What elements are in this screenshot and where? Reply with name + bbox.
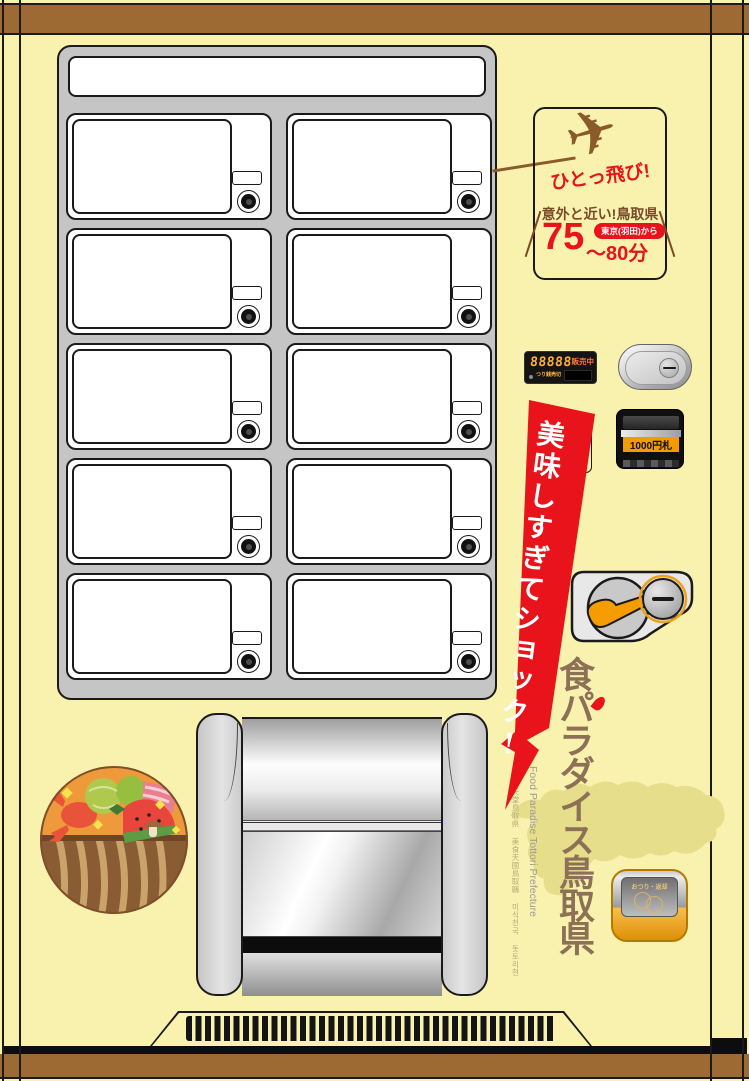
- product-window: [72, 579, 232, 674]
- knob-slit-icon: [652, 597, 674, 601]
- price-label: [232, 631, 262, 645]
- flight-origin-badge: 東京(羽田)から: [594, 223, 665, 239]
- vent-bars: [186, 1016, 556, 1041]
- price-label: [452, 286, 482, 300]
- select-button-ring: [241, 424, 256, 439]
- select-button-ring: [241, 539, 256, 554]
- product-window: [72, 234, 232, 329]
- display-sub-label-left: つり銭: [536, 373, 551, 379]
- select-button[interactable]: [237, 305, 260, 328]
- left-face-seam: [19, 0, 21, 1081]
- top-trim-bar: [0, 3, 749, 35]
- price-display-digits: 88888: [529, 355, 572, 370]
- product-window: [72, 349, 232, 444]
- select-button[interactable]: [457, 650, 480, 673]
- select-button[interactable]: [237, 650, 260, 673]
- select-button-core: [246, 314, 252, 320]
- door-upper-roller: [242, 717, 442, 821]
- coin-slit-icon: [663, 367, 676, 370]
- flight-minutes-range: 〜80分: [586, 237, 648, 266]
- right-face-seam: [710, 0, 712, 1081]
- display-window: [564, 370, 592, 381]
- select-button-core: [466, 429, 472, 435]
- right-outer-edge: [742, 0, 744, 1081]
- coin-slot[interactable]: [618, 344, 692, 390]
- select-button-core: [246, 429, 252, 435]
- product-slot: [286, 343, 492, 450]
- select-button[interactable]: [237, 420, 260, 443]
- bill-insert-opening[interactable]: [623, 416, 679, 429]
- bill-slot-ridges: [623, 460, 679, 467]
- product-window: [292, 579, 452, 674]
- price-label: [452, 516, 482, 530]
- price-label: [232, 516, 262, 530]
- coin-return-slot[interactable]: おつり・返却: [611, 869, 688, 942]
- product-window: [292, 464, 452, 559]
- select-button-ring: [461, 539, 476, 554]
- pillar-highlight: [447, 723, 461, 801]
- select-button[interactable]: [457, 535, 480, 558]
- price-label: [232, 286, 262, 300]
- panel-header-strip: [68, 56, 486, 97]
- product-slot: [66, 573, 272, 680]
- bottom-trim-bar: [0, 1054, 749, 1079]
- select-button-ring: [461, 654, 476, 669]
- door-pillar-left: [196, 713, 243, 996]
- select-button-ring: [461, 424, 476, 439]
- select-button[interactable]: [457, 305, 480, 328]
- food-basket-illustration: [37, 763, 191, 917]
- select-button-core: [246, 544, 252, 550]
- select-button-core: [466, 544, 472, 550]
- display-led: [529, 375, 533, 379]
- select-button[interactable]: [457, 420, 480, 443]
- bill-acceptor[interactable]: 1000円札: [616, 409, 684, 469]
- flight-minutes: 75: [542, 218, 584, 256]
- product-window: [72, 464, 232, 559]
- select-button[interactable]: [457, 190, 480, 213]
- select-button-core: [466, 659, 472, 665]
- product-slot: [66, 458, 272, 565]
- coin-insert-opening[interactable]: [659, 358, 679, 378]
- product-slot: [286, 228, 492, 335]
- price-label: [452, 631, 482, 645]
- select-button-core: [246, 659, 252, 665]
- dispensing-door-flap[interactable]: [242, 831, 442, 937]
- bill-slot-label: 1000円札: [623, 437, 679, 452]
- left-outer-edge: [2, 0, 4, 1081]
- product-window: [292, 119, 452, 214]
- coin-return-recess[interactable]: おつり・返却: [621, 877, 678, 917]
- select-button-ring: [461, 309, 476, 324]
- select-button-ring: [241, 654, 256, 669]
- product-slot: [286, 113, 492, 220]
- coin-icon: [646, 896, 663, 913]
- product-window: [72, 119, 232, 214]
- select-button-core: [246, 199, 252, 205]
- product-slot: [286, 458, 492, 565]
- down-arrow-icon: [645, 452, 657, 459]
- product-slot: [66, 343, 272, 450]
- ventilation-grille: [150, 1011, 592, 1046]
- price-display: 88888 販売中 つり銭 売切: [524, 351, 597, 384]
- price-label: [232, 401, 262, 415]
- dispensing-slot: [242, 937, 442, 953]
- display-sub-label-right: 売切: [551, 373, 561, 379]
- price-label: [452, 171, 482, 185]
- select-button[interactable]: [237, 535, 260, 558]
- select-button-ring: [241, 309, 256, 324]
- sale-banner: 美味しすぎてショック!: [497, 396, 603, 814]
- select-button-core: [466, 199, 472, 205]
- product-window: [292, 234, 452, 329]
- select-button-ring: [461, 194, 476, 209]
- product-slot: [66, 228, 272, 335]
- select-button-ring: [241, 194, 256, 209]
- price-display-status: 販売中: [572, 356, 595, 367]
- door-separator: [242, 822, 442, 831]
- price-label: [452, 401, 482, 415]
- price-label: [232, 171, 262, 185]
- bill-metal-band: [621, 430, 681, 437]
- select-button[interactable]: [237, 190, 260, 213]
- coin-return-label: おつり・返却: [622, 882, 677, 891]
- product-slot: [286, 573, 492, 680]
- door-pillar-right: [441, 713, 488, 996]
- pillar-highlight: [224, 723, 238, 801]
- product-slot: [66, 113, 272, 220]
- select-button-core: [466, 314, 472, 320]
- vending-machine: ✈ ひとっ飛び! 意外と近い!鳥取県 75 〜80分 東京(羽田)から 8888…: [0, 0, 749, 1081]
- product-grid: [66, 113, 492, 683]
- product-window: [292, 349, 452, 444]
- door-lower-plate: [242, 953, 442, 996]
